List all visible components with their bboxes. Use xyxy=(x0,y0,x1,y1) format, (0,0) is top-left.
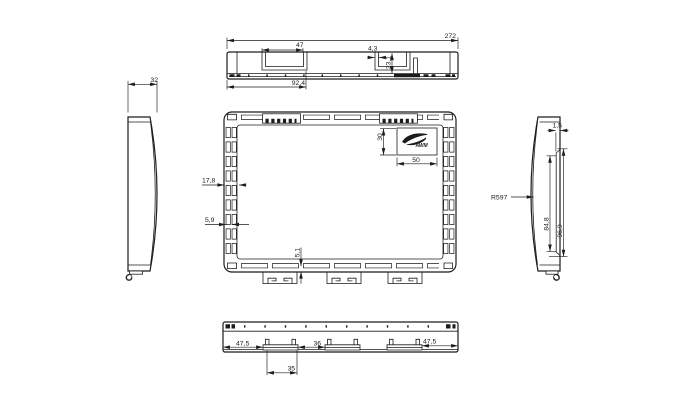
logo-text: AWM xyxy=(415,143,429,149)
dim-tab-width-label: 35 xyxy=(288,365,296,372)
dim-tab-gap-label: 5,1 xyxy=(295,248,302,258)
top-section-view: 272 47 4,3 23,1 92,4 xyxy=(227,33,458,90)
drawing-canvas: 272 47 4,3 23,1 92,4 3 xyxy=(0,0,688,403)
dim-slot-width-label: 5,9 xyxy=(205,217,215,224)
dim-tab-width: 35 xyxy=(267,351,297,376)
front-outline xyxy=(224,112,456,272)
dim-logo-width-label: 50 xyxy=(412,157,420,164)
bottom-view: 47,5 36 47,5 35 xyxy=(223,322,458,375)
ext-lines xyxy=(128,81,157,113)
dim-radius: R597 xyxy=(491,195,534,202)
dim-logo-height-label: 30 xyxy=(377,133,384,141)
left-profile-view: 32 xyxy=(126,77,158,281)
dim-center-gap-label: 36 xyxy=(314,340,322,347)
dim-inner-height-label: 84,8 xyxy=(543,217,550,230)
foot-bar xyxy=(546,271,558,274)
dim-edge-gap-label: 1,5 xyxy=(553,123,563,130)
dim-border-width-label: 17,8 xyxy=(202,178,215,185)
dim-right-offset-label: 47,5 xyxy=(423,338,436,345)
front-view: AWM 30 50 17,8 5,9 5,1 xyxy=(202,112,456,284)
dim-depth-label: 23,1 xyxy=(386,56,393,69)
dim-overall-width-label: 272 xyxy=(445,33,457,40)
foot-bar xyxy=(130,271,143,274)
dim-thickness-label: 32 xyxy=(151,77,159,84)
technical-drawing: 272 47 4,3 23,1 92,4 3 xyxy=(0,0,688,403)
dim-outer-height-label: 96,9 xyxy=(557,224,564,237)
dim-recess-width: 47 xyxy=(262,42,304,51)
dim-radius-label: R597 xyxy=(491,195,507,202)
ext-lines xyxy=(227,38,458,50)
mounting-tabs xyxy=(263,272,422,284)
dim-recess-width-label: 47 xyxy=(296,42,304,49)
dim-thickness: 32 xyxy=(128,77,158,113)
dim-notch-label: 4,3 xyxy=(368,46,378,53)
dim-recess-offset-label: 92,4 xyxy=(292,80,305,87)
dim-overall-width: 272 xyxy=(227,33,458,49)
right-profile-view: R597 1,5 84,8 96,9 xyxy=(491,117,569,281)
dim-left-offset-label: 47,5 xyxy=(236,340,249,347)
